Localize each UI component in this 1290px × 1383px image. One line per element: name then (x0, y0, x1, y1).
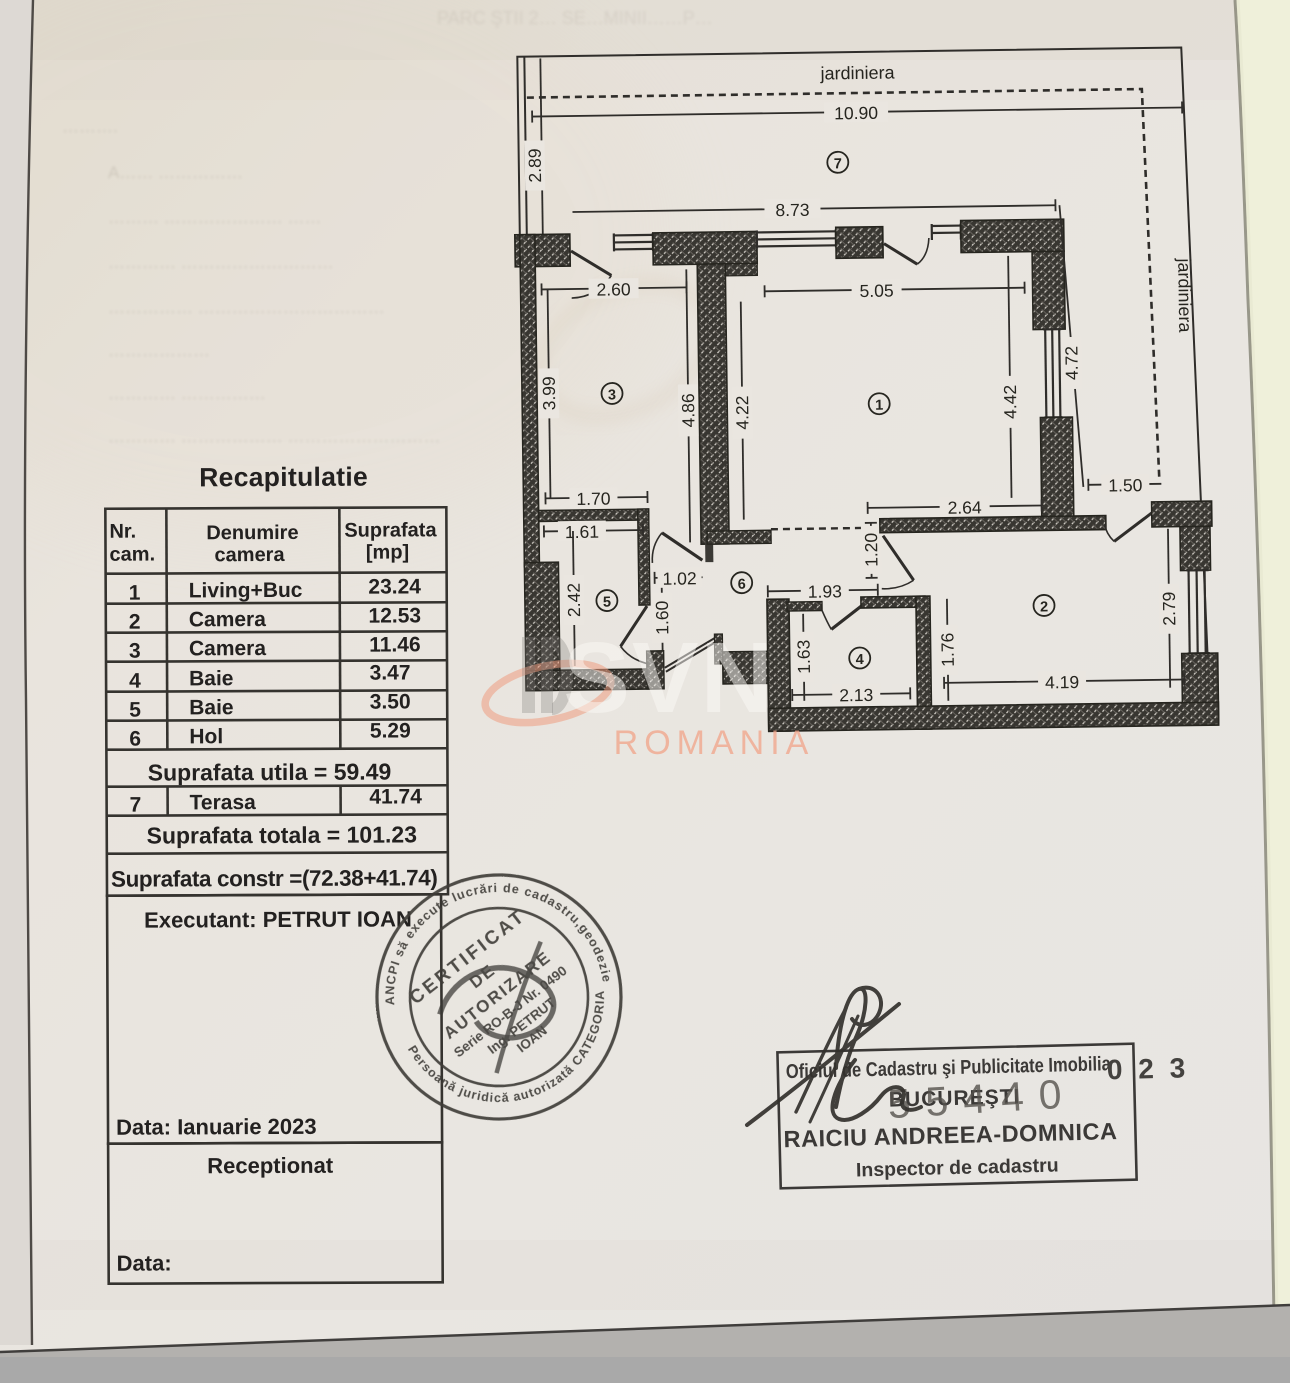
svg-text:2.60: 2.60 (596, 279, 631, 299)
svg-text:2.79: 2.79 (1159, 592, 1179, 626)
svg-text:Hol: Hol (189, 725, 223, 748)
svg-text:………… ………………………: ………… ……………………… (108, 253, 334, 272)
svg-text:Camera: Camera (189, 608, 266, 631)
svg-text:Living+Buc: Living+Buc (189, 579, 303, 602)
svg-text:0 2 3: 0 2 3 (1107, 1052, 1190, 1085)
svg-text:5: 5 (603, 594, 611, 610)
svg-text:6: 6 (129, 728, 141, 751)
svg-text:1.76: 1.76 (937, 633, 957, 667)
svg-text:Receptionat: Receptionat (207, 1153, 334, 1179)
svg-text:1.70: 1.70 (576, 488, 611, 508)
svg-text:Suprafata: Suprafata (344, 519, 437, 541)
svg-text:3.47: 3.47 (370, 661, 411, 684)
svg-text:11.46: 11.46 (369, 633, 421, 656)
svg-text:Suprafata utila = 59.49: Suprafata utila = 59.49 (148, 758, 392, 785)
svg-text:Data:: Data: (117, 1250, 172, 1275)
svg-text:2.64: 2.64 (947, 497, 982, 517)
svg-text:4.22: 4.22 (732, 395, 752, 429)
svg-text:1.63: 1.63 (793, 640, 813, 674)
svg-text:12.53: 12.53 (368, 604, 421, 627)
svg-text:[mp]: [mp] (366, 541, 409, 563)
svg-text:Suprafata constr =(72.38+41.74: Suprafata constr =(72.38+41.74) (111, 865, 438, 891)
svg-text:……….: ………. (62, 117, 118, 136)
svg-text:jardiniera: jardiniera (1174, 257, 1195, 333)
svg-text:3: 3 (608, 387, 616, 403)
svg-text:3: 3 (129, 640, 141, 663)
svg-text:6: 6 (738, 577, 746, 593)
svg-text:10.90: 10.90 (834, 103, 878, 124)
svg-text:41.74: 41.74 (369, 785, 422, 808)
svg-text:………… ……………: ………… …………… (108, 384, 266, 403)
svg-text:4.19: 4.19 (1045, 672, 1079, 692)
svg-text:SVN: SVN (563, 622, 775, 734)
svg-text:1.93: 1.93 (808, 581, 842, 601)
svg-text:……… ………………… ……: ……… ………………… …… (108, 208, 321, 227)
svg-text:2: 2 (1040, 599, 1048, 615)
svg-text:Baie: Baie (189, 667, 233, 690)
svg-text:1: 1 (129, 582, 141, 605)
svg-text:Denumire: Denumire (206, 522, 298, 544)
svg-text:4.86: 4.86 (678, 393, 698, 427)
svg-text:ROMANIA: ROMANIA (614, 724, 815, 762)
svg-text:3.50: 3.50 (370, 690, 411, 713)
svg-text:jardiniera: jardiniera (819, 62, 895, 83)
svg-text:Camera: Camera (189, 637, 266, 660)
svg-text:7: 7 (130, 794, 142, 817)
svg-text:5.05: 5.05 (859, 281, 893, 301)
svg-text:1.50: 1.50 (1108, 475, 1143, 495)
svg-text:Terasa: Terasa (190, 791, 257, 814)
svg-text:4.42: 4.42 (1000, 385, 1020, 419)
svg-text:…………… ……………………………: …………… …………………………… (108, 298, 385, 317)
svg-text:2.89: 2.89 (525, 148, 545, 182)
svg-text:2.13: 2.13 (839, 685, 873, 705)
svg-text:Suprafata totala = 101.23: Suprafata totala = 101.23 (147, 821, 417, 848)
svg-text:2: 2 (129, 611, 141, 634)
svg-text:Executant: PETRUT IOAN: Executant: PETRUT IOAN (144, 906, 412, 932)
svg-text:4.72: 4.72 (1061, 346, 1081, 380)
svg-text:………… ……………… ………………………: ………… ……………… ……………………… (108, 427, 440, 446)
svg-text:A…… ……………: A…… …………… (108, 163, 243, 182)
svg-text:1.20: 1.20 (861, 532, 881, 567)
svg-text:camera: camera (214, 544, 285, 566)
svg-text:4: 4 (129, 670, 141, 693)
svg-text:2.42: 2.42 (564, 583, 584, 617)
svg-text:7: 7 (834, 156, 842, 172)
svg-text:1.61: 1.61 (565, 522, 599, 542)
svg-text:Data: Ianuarie 2023: Data: Ianuarie 2023 (116, 1114, 317, 1140)
svg-text:………………: ……………… (108, 341, 210, 360)
svg-text:5.29: 5.29 (370, 719, 411, 742)
svg-text:Baie: Baie (189, 696, 233, 719)
svg-text:3.99: 3.99 (539, 376, 559, 410)
svg-text:PARC ŞTII 2… SE…MINII……P…: PARC ŞTII 2… SE…MINII……P… (437, 8, 713, 28)
svg-text:4: 4 (856, 652, 864, 668)
svg-text:8.73: 8.73 (775, 200, 809, 220)
svg-text:23.24: 23.24 (368, 575, 421, 598)
svg-text:cam.: cam. (109, 544, 155, 566)
svg-text:1.02: 1.02 (662, 568, 696, 588)
svg-text:Nr.: Nr. (109, 521, 136, 543)
svg-text:1: 1 (875, 398, 883, 414)
svg-text:5: 5 (129, 699, 141, 722)
svg-text:Recapitulatie: Recapitulatie (199, 462, 368, 493)
